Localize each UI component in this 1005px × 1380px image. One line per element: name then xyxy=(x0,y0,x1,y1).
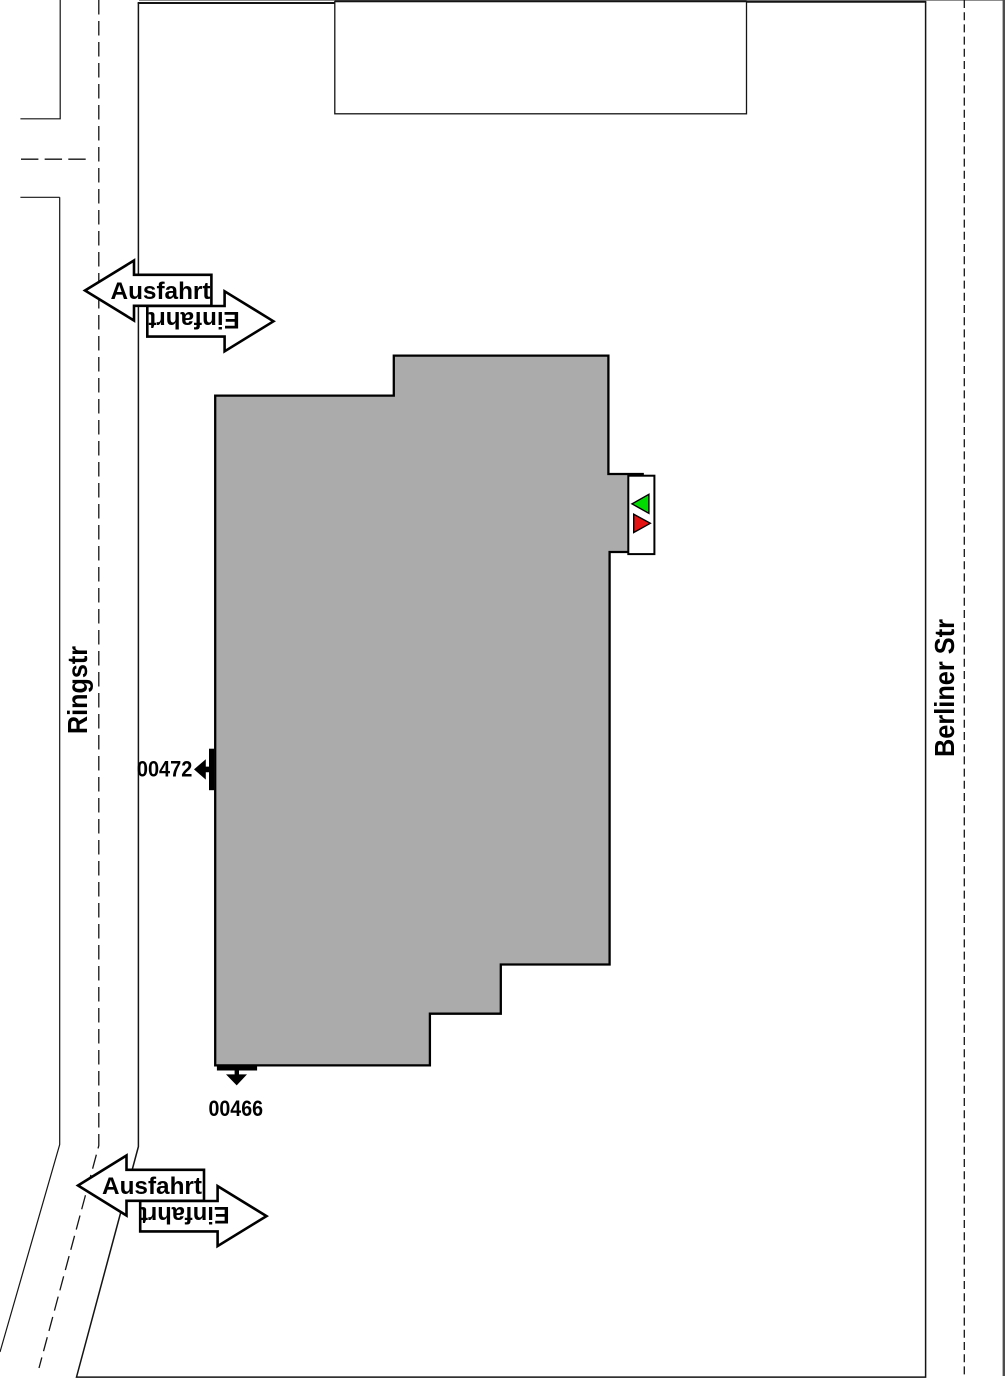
svg-text:00466: 00466 xyxy=(209,1096,264,1121)
svg-text:Einfahrt: Einfahrt xyxy=(148,306,240,333)
svg-text:Ausfahrt: Ausfahrt xyxy=(102,1173,202,1200)
svg-text:00472: 00472 xyxy=(137,756,192,781)
svg-text:Berliner Str: Berliner Str xyxy=(929,619,960,757)
svg-text:Ausfahrt: Ausfahrt xyxy=(111,278,211,305)
svg-text:Ringstr: Ringstr xyxy=(62,646,93,734)
svg-text:Einfahrt: Einfahrt xyxy=(140,1201,230,1228)
